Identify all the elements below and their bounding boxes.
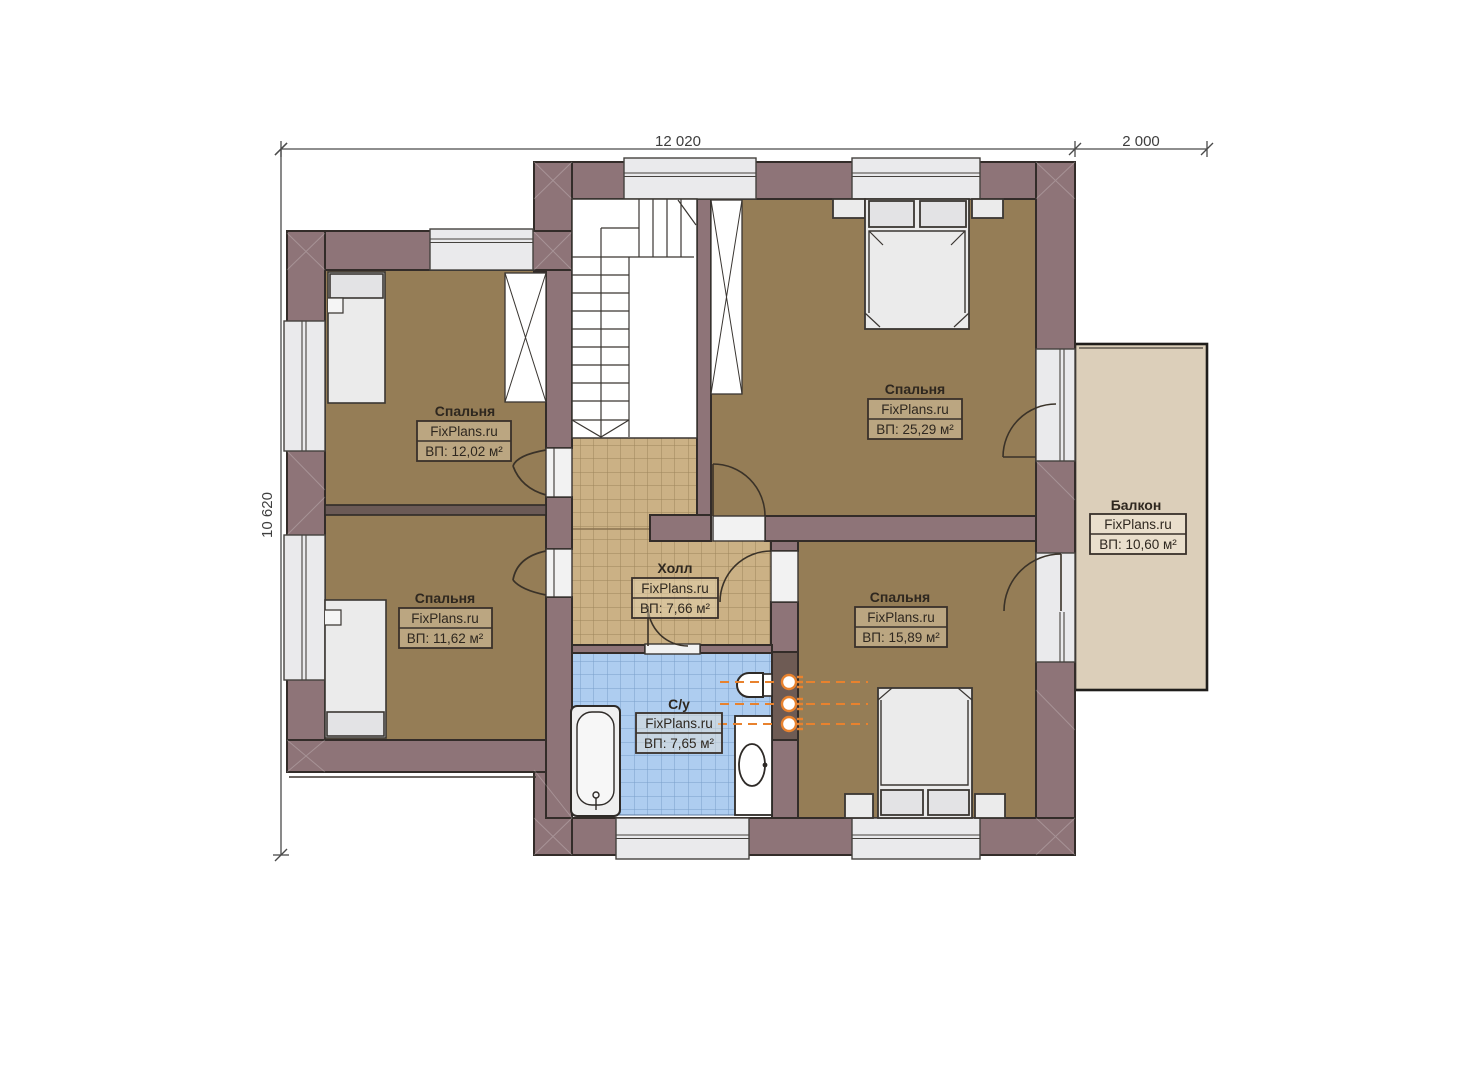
svg-text:FixPlans.ru: FixPlans.ru [1104,517,1172,532]
svg-text:С/у: С/у [668,696,690,712]
svg-text:ВП: 15,89 м²: ВП: 15,89 м² [862,630,940,645]
svg-text:ВП: 25,29 м²: ВП: 25,29 м² [876,422,954,437]
svg-text:FixPlans.ru: FixPlans.ru [867,610,935,625]
svg-text:10 620: 10 620 [259,492,276,538]
svg-text:FixPlans.ru: FixPlans.ru [645,716,713,731]
svg-text:Спальня: Спальня [885,381,945,397]
svg-text:Холл: Холл [657,560,692,576]
svg-text:ВП: 7,65 м²: ВП: 7,65 м² [644,736,715,751]
svg-text:ВП: 10,60 м²: ВП: 10,60 м² [1099,537,1177,552]
svg-text:FixPlans.ru: FixPlans.ru [411,611,479,626]
svg-text:FixPlans.ru: FixPlans.ru [881,402,949,417]
svg-text:Спальня: Спальня [870,589,930,605]
svg-text:ВП: 12,02 м²: ВП: 12,02 м² [425,444,503,459]
svg-text:2 000: 2 000 [1122,133,1160,150]
svg-text:FixPlans.ru: FixPlans.ru [641,581,709,596]
svg-text:FixPlans.ru: FixPlans.ru [430,424,498,439]
svg-text:Спальня: Спальня [435,403,495,419]
svg-text:Балкон: Балкон [1111,497,1162,513]
svg-text:12 020: 12 020 [655,133,701,150]
svg-text:ВП: 7,66 м²: ВП: 7,66 м² [640,601,711,616]
svg-text:ВП: 11,62 м²: ВП: 11,62 м² [407,631,484,646]
svg-text:Спальня: Спальня [415,590,475,606]
